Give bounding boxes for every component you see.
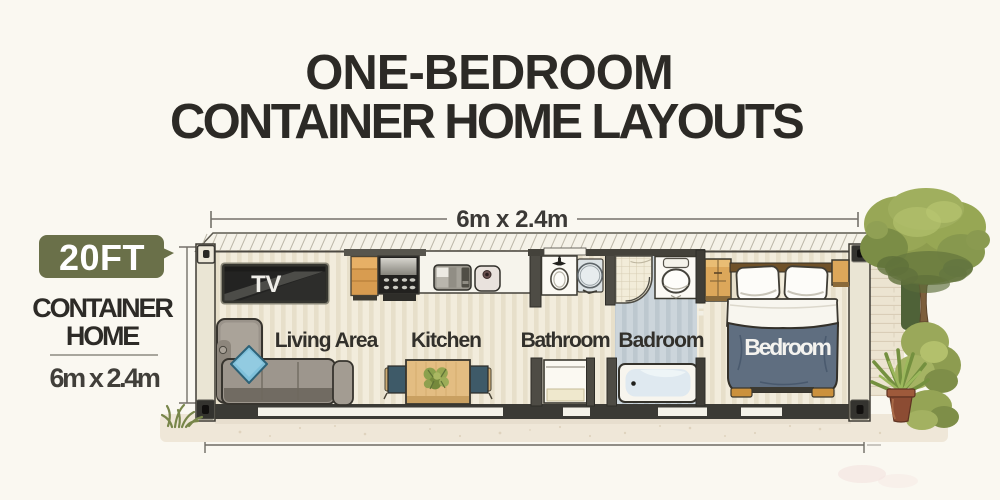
svg-text:ONE-BEDROOM: ONE-BEDROOM — [305, 46, 672, 100]
svg-text:Badroom: Badroom — [618, 329, 704, 352]
svg-text:Bedroom: Bedroom — [744, 334, 831, 360]
svg-text:Kitchen: Kitchen — [411, 329, 481, 352]
svg-text:6m x 2.4m: 6m x 2.4m — [456, 206, 568, 233]
svg-text:20FT: 20FT — [59, 237, 145, 278]
svg-text:Living Area: Living Area — [275, 329, 379, 352]
svg-text:TV: TV — [251, 271, 281, 298]
svg-text:HOME: HOME — [66, 321, 139, 351]
svg-text:6m x 2.4m: 6m x 2.4m — [50, 363, 160, 393]
svg-text:CONTAINER: CONTAINER — [32, 293, 173, 323]
svg-text:Bathroom: Bathroom — [521, 329, 610, 352]
svg-text:CONTAINER HOME LAYOUTS: CONTAINER HOME LAYOUTS — [170, 95, 803, 149]
